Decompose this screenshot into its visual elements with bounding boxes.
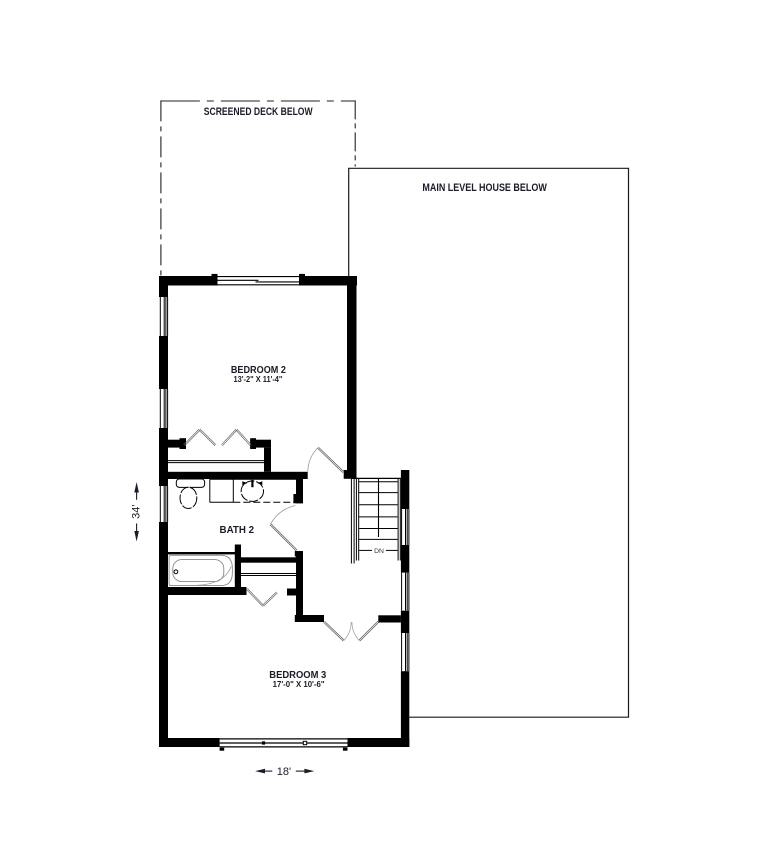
svg-text:MAIN LEVEL HOUSE BELOW: MAIN LEVEL HOUSE BELOW [422, 182, 547, 194]
svg-text:DN: DN [374, 548, 384, 555]
svg-text:SCREENED DECK BELOW: SCREENED DECK BELOW [204, 106, 313, 118]
svg-text:18': 18' [277, 766, 291, 778]
svg-text:34': 34' [131, 505, 143, 519]
svg-text:17'-0" X 10'-6": 17'-0" X 10'-6" [273, 680, 325, 689]
svg-text:13'-2" X 11'-4": 13'-2" X 11'-4" [234, 375, 283, 384]
svg-text:BATH 2: BATH 2 [220, 525, 255, 536]
